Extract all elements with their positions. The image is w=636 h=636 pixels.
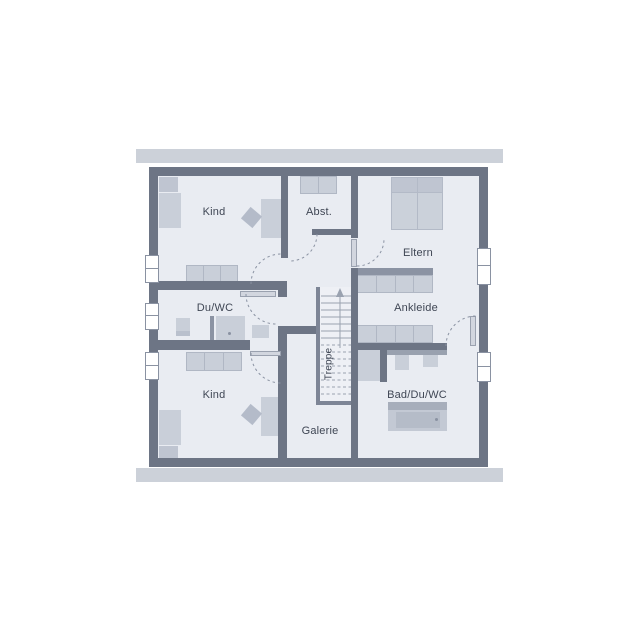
- shelf-abstellraum: [300, 176, 337, 194]
- door-leaf-eltern: [351, 239, 357, 267]
- desk-kind-top: [261, 199, 281, 238]
- roof-eave-top: [136, 149, 503, 163]
- room-label-abstellraum: Abst.: [306, 206, 332, 218]
- wardrobe-top-ankleide: [357, 275, 433, 293]
- room-label-galerie: Galerie: [302, 425, 339, 437]
- bed-pillow-kind-bottom: [159, 446, 178, 458]
- door-leaf-bad: [470, 316, 476, 346]
- window-left-3: [145, 352, 159, 380]
- roof-eave-bottom: [136, 468, 503, 482]
- bathtub-drain: [435, 418, 438, 421]
- window-right-2: [477, 352, 491, 382]
- room-label-kind-top: Kind: [203, 206, 226, 218]
- sink-du-wc: [176, 318, 190, 336]
- room-label-du-wc: Du/WC: [197, 302, 233, 314]
- staircase-area: [320, 287, 351, 401]
- wall-outer-right: [479, 167, 488, 467]
- room-label-kind-bottom: Kind: [203, 389, 226, 401]
- sink-right-bad: [423, 355, 438, 367]
- bed-kind-top: [159, 193, 181, 228]
- wall-hall-stub-top: [278, 281, 287, 297]
- window-left-2: [145, 303, 159, 330]
- bed-kind-bottom: [159, 410, 181, 445]
- wall-ankleide-bad: [358, 343, 447, 350]
- wall-stairs-left: [316, 287, 320, 405]
- window-left-1: [145, 255, 159, 283]
- wardrobe-kind-bottom: [186, 352, 242, 371]
- wardrobe-bottom-ankleide: [357, 325, 433, 343]
- bed-pillow-kind-top: [159, 177, 178, 192]
- wall-shower-stub-bad: [380, 350, 387, 382]
- toilet-du-wc: [252, 325, 269, 338]
- shower-drain-du-wc: [228, 332, 231, 335]
- wall-stairs-bottom: [316, 401, 351, 405]
- room-label-treppe: Treppe: [324, 348, 335, 381]
- bed-eltern: [391, 177, 443, 230]
- room-label-bad-du-wc: Bad/Du/WC: [387, 389, 447, 401]
- wall-kind-top-abst: [281, 176, 288, 258]
- wall-kind-bottom-galerie: [278, 326, 287, 458]
- wardrobe-top-rail-ankleide: [357, 268, 433, 275]
- wall-duwc-kind-bottom: [158, 340, 250, 350]
- room-label-eltern: Eltern: [403, 247, 433, 259]
- wall-kind-top-bottom: [158, 281, 281, 290]
- bathtub-basin: [396, 412, 440, 428]
- shower-bad: [358, 350, 380, 381]
- wall-outer-top: [149, 167, 488, 176]
- shower-partition-du-wc: [210, 316, 214, 340]
- door-leaf-kind-bottom: [250, 351, 281, 356]
- wall-central-spine: [351, 268, 358, 458]
- sink-left-bad: [395, 355, 409, 370]
- door-leaf-du-wc: [240, 291, 276, 297]
- wall-abst-bottom: [312, 229, 358, 235]
- room-label-ankleide: Ankleide: [394, 302, 438, 314]
- bathtub-rim: [388, 402, 447, 410]
- window-right-1: [477, 248, 491, 285]
- shower-du-wc: [216, 316, 245, 340]
- wall-outer-bottom: [149, 458, 488, 467]
- floor-plan: Kind Abst. Eltern Du/WC Ankleide Kind Ba…: [0, 0, 636, 636]
